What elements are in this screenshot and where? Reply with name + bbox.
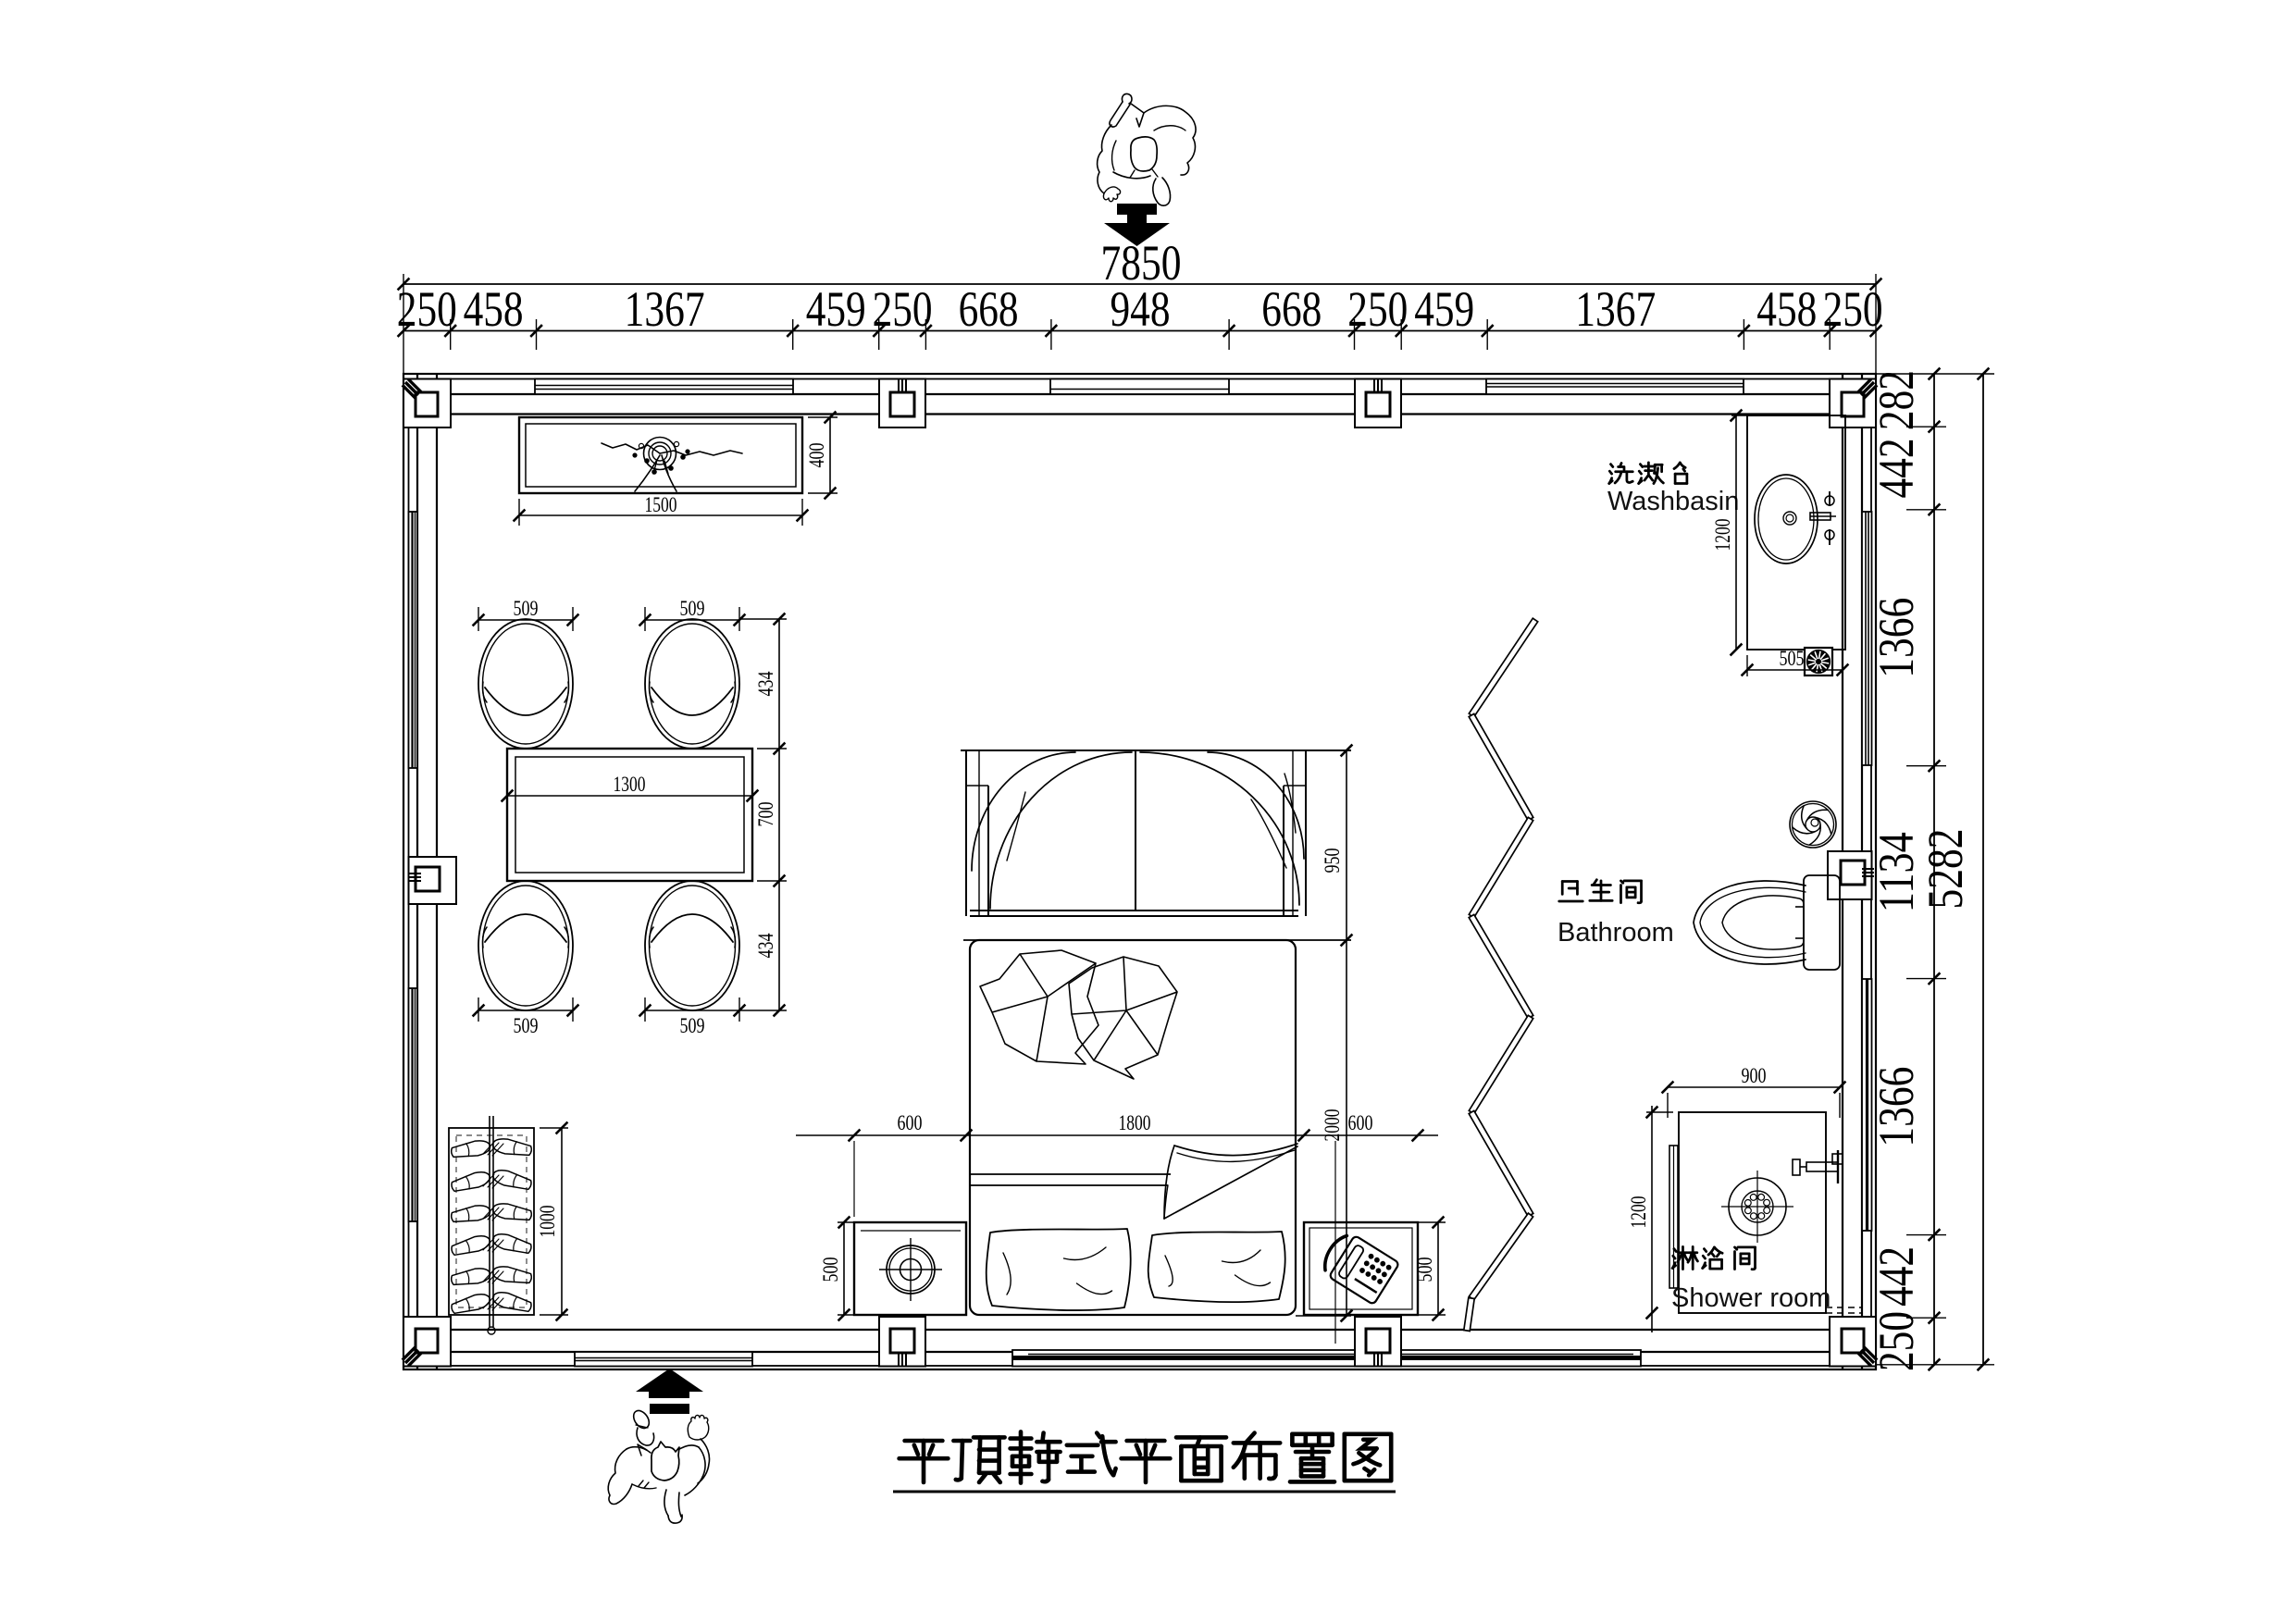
svg-text:509: 509 (680, 1014, 705, 1037)
svg-text:500: 500 (1413, 1258, 1436, 1282)
svg-text:434: 434 (754, 671, 777, 696)
svg-text:Shower room: Shower room (1671, 1283, 1831, 1313)
svg-text:500: 500 (819, 1258, 842, 1282)
svg-text:1000: 1000 (536, 1206, 559, 1238)
svg-text:509: 509 (514, 597, 539, 620)
svg-text:1300: 1300 (614, 773, 646, 796)
svg-text:700: 700 (754, 802, 777, 827)
svg-text:Washbasin: Washbasin (1607, 487, 1739, 516)
svg-text:250: 250 (397, 281, 457, 337)
svg-text:458: 458 (1756, 281, 1817, 337)
svg-text:434: 434 (754, 933, 777, 958)
svg-text:505: 505 (1780, 647, 1805, 670)
svg-text:509: 509 (680, 597, 705, 620)
svg-text:400: 400 (805, 443, 828, 468)
svg-text:1800: 1800 (1119, 1111, 1151, 1134)
svg-text:668: 668 (959, 281, 1019, 337)
svg-text:1500: 1500 (645, 493, 677, 516)
svg-text:600: 600 (898, 1111, 923, 1134)
svg-text:250: 250 (1347, 281, 1408, 337)
svg-text:1367: 1367 (625, 281, 705, 337)
svg-text:900: 900 (1742, 1064, 1767, 1087)
svg-text:282: 282 (1868, 370, 1924, 430)
svg-text:1134: 1134 (1868, 832, 1924, 912)
svg-text:1200: 1200 (1627, 1196, 1650, 1229)
svg-text:2000: 2000 (1321, 1109, 1344, 1142)
svg-text:1367: 1367 (1575, 281, 1656, 337)
svg-text:948: 948 (1111, 281, 1171, 337)
svg-text:1366: 1366 (1868, 1067, 1924, 1147)
svg-text:600: 600 (1348, 1111, 1373, 1134)
svg-text:250: 250 (1868, 1311, 1924, 1371)
svg-text:1200: 1200 (1711, 519, 1734, 551)
svg-text:459: 459 (1414, 281, 1474, 337)
svg-text:459: 459 (806, 281, 866, 337)
svg-text:668: 668 (1261, 281, 1322, 337)
svg-text:5282: 5282 (1917, 829, 1973, 910)
svg-text:250: 250 (873, 281, 933, 337)
svg-text:458: 458 (464, 281, 524, 337)
svg-text:250: 250 (1823, 281, 1883, 337)
svg-text:442: 442 (1868, 439, 1924, 499)
svg-text:Bathroom: Bathroom (1558, 918, 1674, 948)
svg-text:509: 509 (514, 1014, 539, 1037)
svg-text:442: 442 (1868, 1246, 1924, 1307)
svg-text:950: 950 (1321, 849, 1344, 873)
svg-text:1366: 1366 (1868, 598, 1924, 678)
